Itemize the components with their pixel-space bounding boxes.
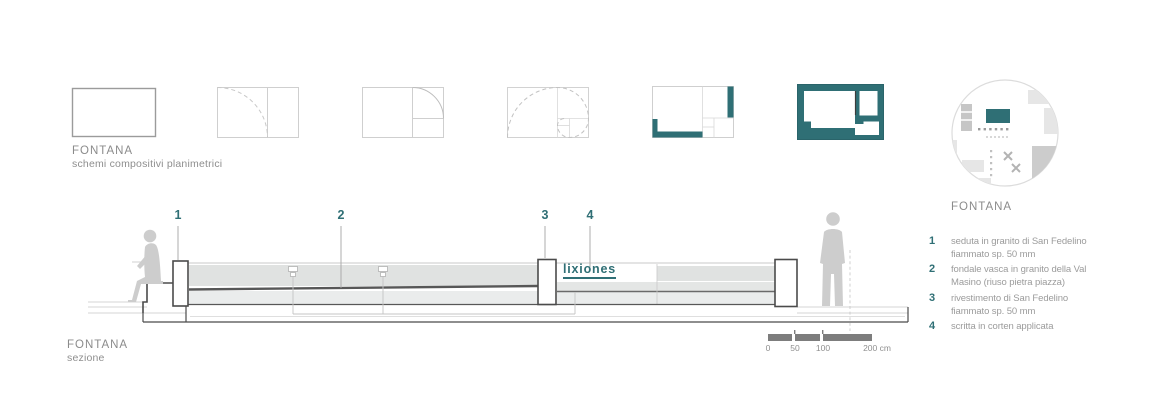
legend-item-1-text: seduta in granito di San Fedelino fiamma… xyxy=(951,236,1089,261)
section-drawing xyxy=(88,212,908,341)
legend-item-3-number: 3 xyxy=(929,292,945,304)
standing-person-silhouette xyxy=(820,212,845,306)
scale-label-100: 100 xyxy=(816,343,830,353)
callout-2: 2 xyxy=(338,208,345,222)
scheme-diagram-4 xyxy=(508,88,589,138)
schemes-subtitle: schemi compositivi planimetrici xyxy=(72,158,222,170)
scheme-diagram-5 xyxy=(653,87,734,138)
architectural-sheet: FONTANA schemi compositivi planimetrici … xyxy=(0,0,1155,420)
scheme-diagram-2 xyxy=(218,88,299,138)
section-title: FONTANA xyxy=(67,339,128,351)
callout-1: 1 xyxy=(175,208,182,222)
fountain-location-marker xyxy=(986,109,1010,123)
scale-label-50: 50 xyxy=(790,343,799,353)
lixiones-logo: lixiones xyxy=(563,263,616,279)
callout-3: 3 xyxy=(542,208,549,222)
key-plan-circle xyxy=(944,80,1058,200)
scheme-diagram-1 xyxy=(73,89,156,137)
legend-item-3-text: rivestimento di San Fedelino fiammato sp… xyxy=(951,293,1089,318)
legend-item-2-text: fondale vasca in granito della Val Masin… xyxy=(951,264,1089,289)
legend-item-4-number: 4 xyxy=(929,320,945,332)
seated-person-silhouette xyxy=(128,230,163,302)
scheme-diagram-3 xyxy=(363,88,444,138)
section-subtitle: sezione xyxy=(67,352,105,364)
scale-label-0: 0 xyxy=(766,343,771,353)
legend-item-4-text: scritta in corten applicata xyxy=(951,321,1089,334)
scale-bar xyxy=(768,330,872,341)
scheme-diagram-6 xyxy=(798,85,884,140)
legend-item-1-number: 1 xyxy=(929,235,945,247)
legend-title: FONTANA xyxy=(951,201,1012,213)
legend-item-2-number: 2 xyxy=(929,263,945,275)
schemes-title: FONTANA xyxy=(72,145,133,157)
scale-label-200: 200 cm xyxy=(863,343,891,353)
callout-4: 4 xyxy=(587,208,594,222)
